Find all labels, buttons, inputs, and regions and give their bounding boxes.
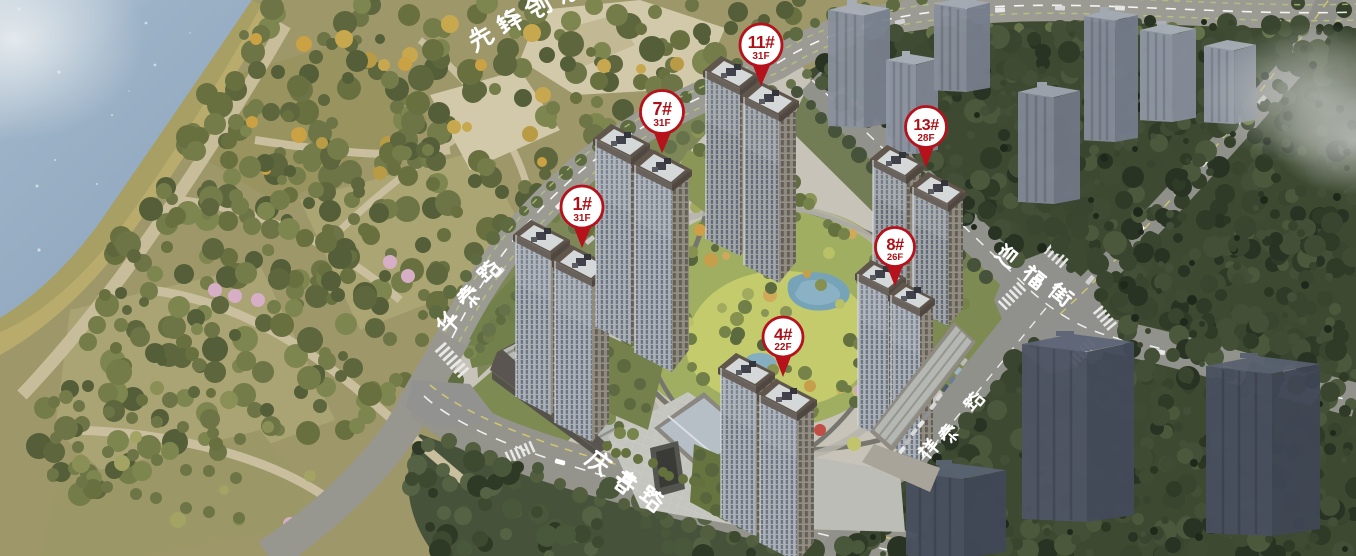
svg-text:13#: 13# bbox=[913, 117, 939, 134]
svg-text:31F: 31F bbox=[653, 118, 670, 129]
svg-text:11#: 11# bbox=[748, 32, 775, 52]
svg-text:1#: 1# bbox=[572, 194, 592, 214]
svg-text:7#: 7# bbox=[652, 99, 672, 119]
svg-text:26F: 26F bbox=[887, 252, 904, 263]
svg-text:31F: 31F bbox=[573, 213, 590, 224]
svg-text:22F: 22F bbox=[774, 342, 791, 353]
svg-text:31F: 31F bbox=[752, 51, 769, 62]
svg-text:28F: 28F bbox=[917, 133, 934, 144]
